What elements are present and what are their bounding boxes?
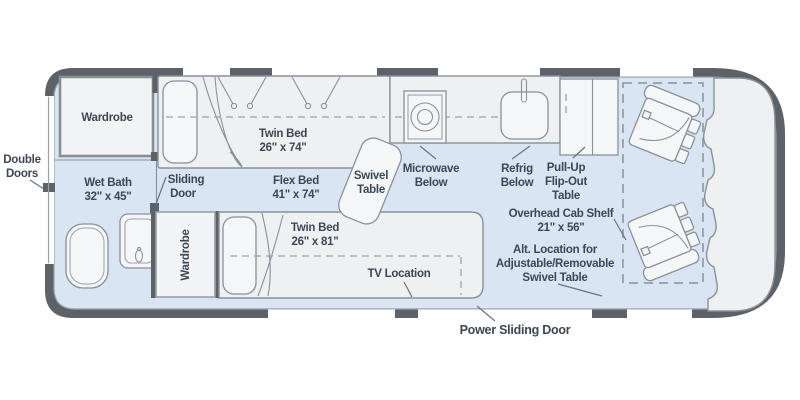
twin-bed-upper-label-2: 26" x 74" xyxy=(259,142,306,154)
power-sliding-door-label: Power Sliding Door xyxy=(460,323,571,337)
swivel-table-label-2: Table xyxy=(357,184,385,196)
window-galley xyxy=(438,66,540,77)
window-mid-roof xyxy=(272,66,377,77)
twin-bed-lower xyxy=(219,212,483,298)
microwave-label-2: Below xyxy=(415,177,448,189)
toilet xyxy=(66,224,108,288)
power-sliding-door-gap xyxy=(418,310,592,321)
pull-up-table-label-1: Pull-Up xyxy=(547,162,586,174)
wardrobe-rear-label: Wardrobe xyxy=(81,112,132,124)
double-doors-label-1: Double xyxy=(3,154,40,166)
window-lounge xyxy=(268,310,395,321)
alt-swivel-label-2: Adjustable/Removable xyxy=(496,258,614,270)
wardrobe-mid-label: Wardrobe xyxy=(180,229,192,280)
pull-up-table-label-3: Table xyxy=(552,190,580,202)
wet-bath-label-2: 32" x 45" xyxy=(84,191,131,203)
twin-bed-lower-label-2: 26" x 81" xyxy=(291,236,338,248)
alt-swivel-label-3: Swivel Table xyxy=(522,272,587,284)
floorplan-canvas: Wardrobe Twin Bed 26" x 74" xyxy=(0,0,800,400)
swivel-table-label-1: Swivel xyxy=(354,170,388,182)
tv-location-label: TV Location xyxy=(367,268,430,280)
overhead-shelf-label-1: Overhead Cab Shelf xyxy=(509,208,614,220)
overhead-shelf-label-2: 21" x 56" xyxy=(537,222,584,234)
twin-bed-lower-label-1: Twin Bed xyxy=(291,222,339,234)
floorplan-svg: Wardrobe Twin Bed 26" x 74" xyxy=(0,0,800,400)
wet-bath-label-1: Wet Bath xyxy=(84,177,132,189)
window-rear-roof-1 xyxy=(183,66,230,77)
refrig-label-2: Below xyxy=(501,177,534,189)
double-doors-leader xyxy=(30,180,44,189)
twin-bed-lower-pillow xyxy=(223,217,256,294)
alt-swivel-label-1: Alt. Location for xyxy=(513,244,598,256)
window-cab-bottom xyxy=(627,310,692,321)
sliding-door-label-1: Sliding xyxy=(168,174,205,186)
refrig-label-1: Refrig xyxy=(501,163,533,175)
cooktop xyxy=(404,91,446,143)
microwave-label-1: Microwave xyxy=(403,163,460,175)
twin-bed-upper-pillow xyxy=(163,81,197,163)
window-cab-top xyxy=(620,66,693,77)
pull-up-table-cabinet xyxy=(560,79,618,155)
flex-bed-label-2: 41" x 74" xyxy=(272,189,319,201)
double-doors-label-2: Doors xyxy=(6,168,38,180)
pull-up-table-label-2: Flip-Out xyxy=(545,176,587,188)
sliding-door-label-2: Door xyxy=(170,188,197,200)
twin-bed-upper-label-1: Twin Bed xyxy=(259,128,307,140)
flex-bed-label-1: Flex Bed xyxy=(273,175,319,187)
